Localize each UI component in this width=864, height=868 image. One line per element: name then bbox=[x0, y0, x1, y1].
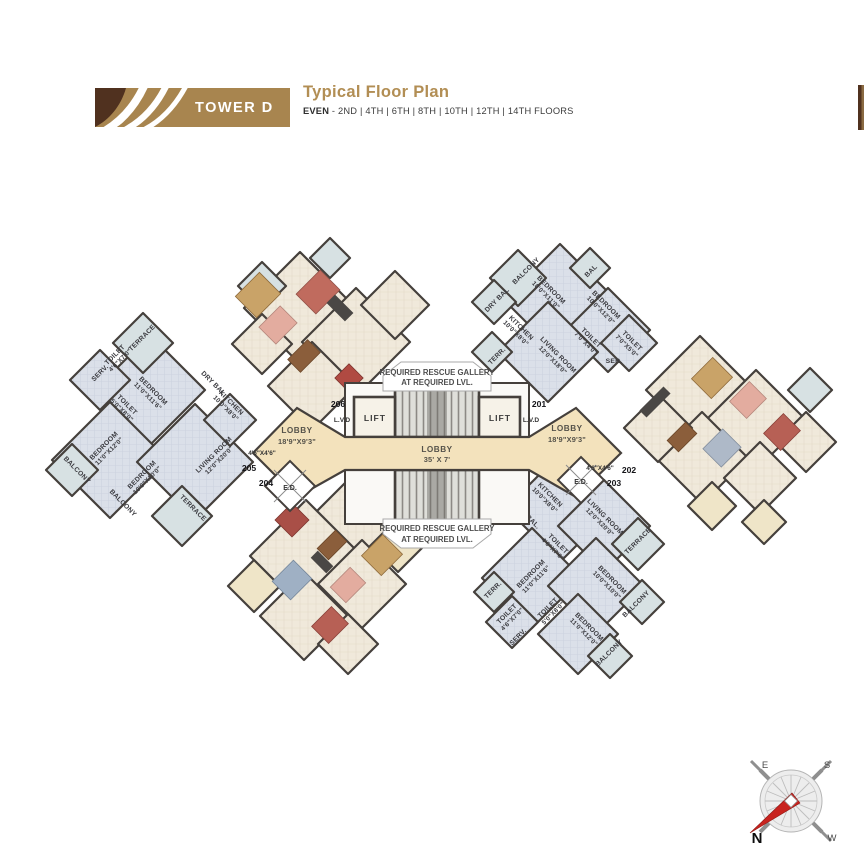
compass-e-label: E bbox=[762, 760, 768, 771]
staircase-lower-rail bbox=[427, 470, 447, 524]
unit-number-204: 204 bbox=[259, 478, 274, 488]
unit-number-202: 202 bbox=[622, 465, 637, 475]
lobby-left-size: 18'9"X9'3" bbox=[278, 437, 316, 446]
lobby-main-size: 35' X 7' bbox=[424, 455, 451, 464]
lift-left-label: LIFT bbox=[364, 413, 386, 423]
compass-rose-icon: E S W N bbox=[750, 760, 837, 847]
rescue-bottom-line1: REQUIRED RESCUE GALLERY bbox=[380, 524, 496, 533]
lobby-right-size: 18'9"X9'3" bbox=[548, 435, 586, 444]
compass-s-label: S bbox=[824, 760, 830, 771]
compass-w-label: W bbox=[828, 833, 837, 844]
lobby-right-label: LOBBY bbox=[551, 424, 582, 433]
ed-left-size: 4'6"X4'6" bbox=[248, 450, 276, 457]
ed-right-label: E.D. bbox=[574, 479, 588, 486]
unit-205-block: TERRACE TOILET4'6"X7'0" SERV. BEDROOM11'… bbox=[46, 313, 256, 546]
lobby-main-label: LOBBY bbox=[421, 445, 452, 454]
compass-n-label: N bbox=[752, 830, 763, 847]
rescue-top-line2: AT REQUIRED LVL. bbox=[401, 378, 473, 387]
u201-ser-label: SER. bbox=[606, 358, 623, 365]
unit-202-block bbox=[624, 336, 836, 544]
lvd-left-label: L.V.D bbox=[334, 417, 350, 424]
page: TOWER D Typical Floor Plan EVEN - 2ND | … bbox=[0, 0, 864, 868]
unit-number-203: 203 bbox=[607, 478, 622, 488]
ed-left-label: E.D. bbox=[283, 485, 297, 492]
svg-text:SER.: SER. bbox=[606, 358, 623, 365]
rescue-top-line1: REQUIRED RESCUE GALLERY bbox=[380, 368, 496, 377]
lobby-left-label: LOBBY bbox=[281, 426, 312, 435]
ed-right-size: 4'6"X4'6" bbox=[586, 465, 614, 472]
unit-number-206: 206 bbox=[331, 399, 346, 409]
floor-plan-svg: TERRACE TOILET4'6"X7'0" SERV. BEDROOM11'… bbox=[0, 0, 864, 868]
unit-201-block: DRY BAL BALCONY BEDROOM10'0"X11'0" BAL B… bbox=[472, 244, 657, 402]
lift-right-label: LIFT bbox=[489, 413, 511, 423]
unit-number-205: 205 bbox=[242, 463, 257, 473]
lvd-right-label: L.V.D bbox=[523, 417, 539, 424]
rescue-bottom-line2: AT REQUIRED LVL. bbox=[401, 535, 473, 544]
unit-number-201: 201 bbox=[532, 399, 547, 409]
